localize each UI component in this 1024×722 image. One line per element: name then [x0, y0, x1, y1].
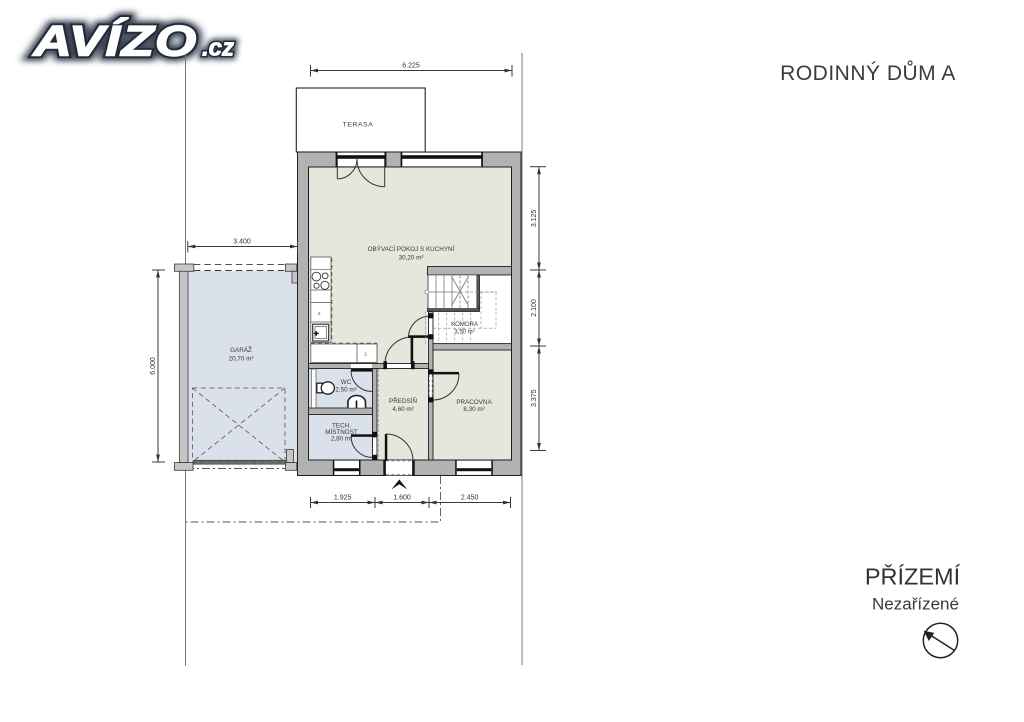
svg-text:KOMORA: KOMORA [451, 322, 478, 328]
svg-text:2.450: 2.450 [461, 495, 479, 502]
svg-text:2,80 m²: 2,80 m² [331, 435, 352, 442]
svg-text:AVÍZO: AVÍZO [32, 17, 197, 65]
svg-text:8,30 m²: 8,30 m² [463, 406, 484, 413]
svg-text:TERASA: TERASA [343, 122, 374, 129]
svg-text:1.925: 1.925 [334, 495, 352, 502]
svg-text:WC: WC [341, 379, 352, 386]
svg-text:PŘEDSÍŇ: PŘEDSÍŇ [389, 396, 417, 405]
svg-text:6.225: 6.225 [402, 63, 420, 70]
svg-text:L: L [365, 352, 368, 358]
svg-text:.cz: .cz [202, 35, 234, 62]
svg-text:6.000: 6.000 [150, 357, 157, 375]
svg-text:GARÁŽ: GARÁŽ [230, 345, 252, 354]
svg-text:Nezařízené: Nezařízené [872, 595, 959, 614]
svg-text:3.375: 3.375 [531, 389, 538, 407]
svg-text:RODINNÝ DŮM A: RODINNÝ DŮM A [780, 61, 956, 85]
svg-text:30,20 m²: 30,20 m² [399, 255, 424, 262]
svg-text:PŘÍZEMÍ: PŘÍZEMÍ [865, 564, 961, 590]
svg-text:1.600: 1.600 [393, 495, 411, 502]
svg-text:PRACOVNA: PRACOVNA [456, 399, 492, 406]
svg-text:2,50 m²: 2,50 m² [335, 387, 356, 394]
svg-text:2.100: 2.100 [531, 299, 538, 317]
svg-text:3,50 m²: 3,50 m² [454, 330, 474, 336]
svg-text:20,70 m²: 20,70 m² [229, 356, 254, 363]
svg-text:4,60 m²: 4,60 m² [392, 406, 413, 413]
svg-text:OBÝVACÍ POKOJ S KUCHYNÍ: OBÝVACÍ POKOJ S KUCHYNÍ [368, 244, 455, 253]
svg-text:3.400: 3.400 [233, 239, 251, 246]
svg-text:3.125: 3.125 [531, 209, 538, 227]
